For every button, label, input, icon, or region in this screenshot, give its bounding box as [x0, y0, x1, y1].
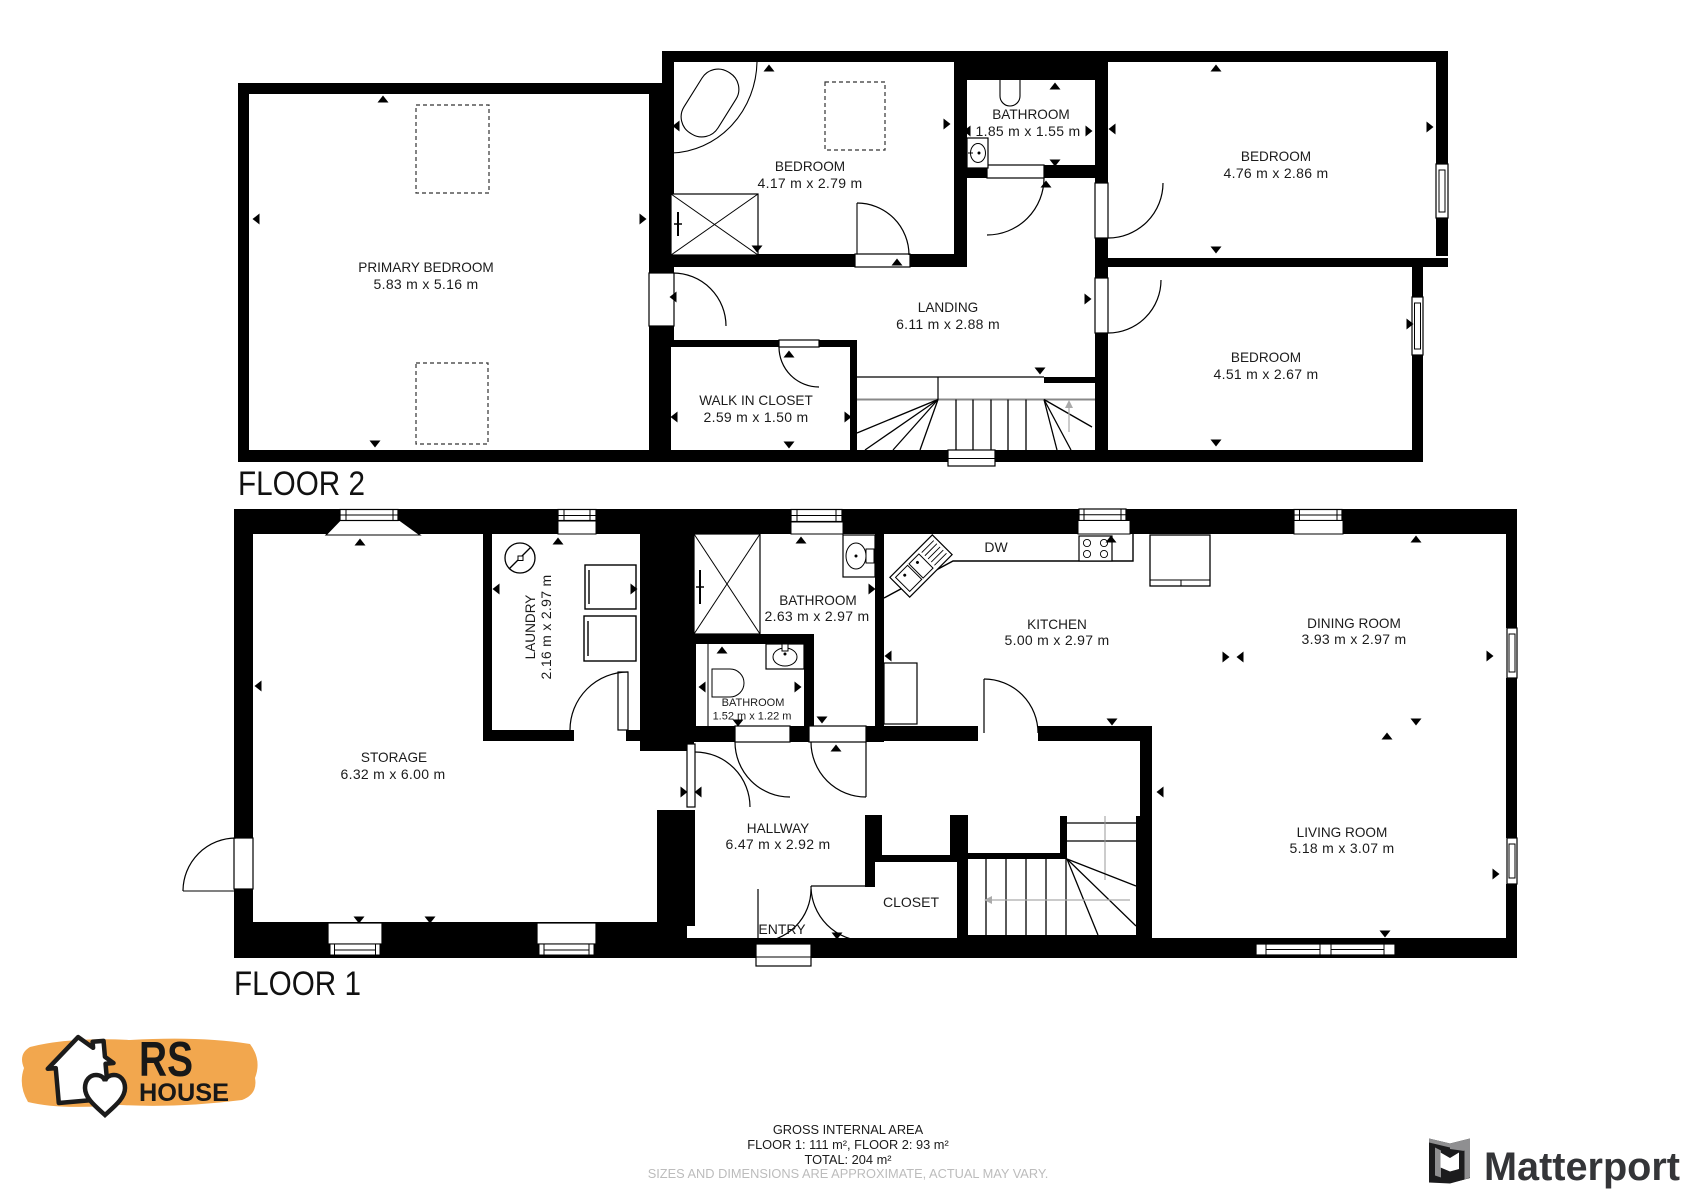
svg-text:LIVING ROOM: LIVING ROOM: [1297, 825, 1388, 840]
svg-text:4.17 m x 2.79 m: 4.17 m x 2.79 m: [758, 175, 863, 191]
svg-text:GROSS INTERNAL AREA: GROSS INTERNAL AREA: [773, 1122, 924, 1137]
svg-text:6.32 m x 6.00 m: 6.32 m x 6.00 m: [341, 766, 446, 782]
svg-text:FLOOR 2: FLOOR 2: [238, 465, 365, 503]
svg-text:5.18 m x 3.07 m: 5.18 m x 3.07 m: [1290, 840, 1395, 856]
svg-text:3.93 m x 2.97 m: 3.93 m x 2.97 m: [1302, 631, 1407, 647]
svg-text:PRIMARY BEDROOM: PRIMARY BEDROOM: [358, 260, 493, 275]
svg-text:BEDROOM: BEDROOM: [1231, 350, 1301, 365]
svg-text:FLOOR 1: 111 m², FLOOR 2: 93 m: FLOOR 1: 111 m², FLOOR 2: 93 m²: [747, 1137, 949, 1152]
svg-text:4.51 m x 2.67 m: 4.51 m x 2.67 m: [1214, 366, 1319, 382]
svg-text:DW: DW: [984, 539, 1008, 555]
svg-text:BEDROOM: BEDROOM: [775, 159, 845, 174]
svg-text:DINING ROOM: DINING ROOM: [1307, 616, 1401, 631]
svg-text:TOTAL: 204 m²: TOTAL: 204 m²: [805, 1152, 893, 1167]
svg-text:2.63 m x 2.97 m: 2.63 m x 2.97 m: [765, 608, 870, 624]
svg-text:BATHROOM: BATHROOM: [992, 107, 1070, 122]
svg-text:1.52 m x 1.22 m: 1.52 m x 1.22 m: [713, 711, 792, 723]
svg-text:STORAGE: STORAGE: [361, 750, 427, 765]
svg-text:4.76 m x 2.86 m: 4.76 m x 2.86 m: [1224, 165, 1329, 181]
svg-text:5.83 m x 5.16 m: 5.83 m x 5.16 m: [374, 276, 479, 292]
svg-text:SIZES AND DIMENSIONS ARE APPRO: SIZES AND DIMENSIONS ARE APPROXIMATE, AC…: [648, 1166, 1049, 1181]
svg-text:KITCHEN: KITCHEN: [1027, 617, 1087, 632]
svg-text:6.47 m x 2.92 m: 6.47 m x 2.92 m: [726, 836, 831, 852]
svg-text:5.00 m x 2.97 m: 5.00 m x 2.97 m: [1005, 632, 1110, 648]
svg-text:BATHROOM: BATHROOM: [722, 697, 785, 709]
svg-text:LANDING: LANDING: [918, 300, 978, 315]
svg-text:LAUNDRY: LAUNDRY: [523, 595, 538, 660]
svg-text:WALK IN CLOSET: WALK IN CLOSET: [699, 393, 813, 408]
svg-text:1.85 m x 1.55 m: 1.85 m x 1.55 m: [976, 123, 1081, 139]
svg-text:HALLWAY: HALLWAY: [747, 821, 809, 836]
svg-text:FLOOR 1: FLOOR 1: [234, 965, 361, 1003]
svg-text:HOUSE: HOUSE: [139, 1079, 229, 1107]
svg-text:Matterport: Matterport: [1484, 1145, 1680, 1189]
svg-text:6.11 m x 2.88 m: 6.11 m x 2.88 m: [896, 316, 1000, 332]
svg-text:BATHROOM: BATHROOM: [779, 593, 857, 608]
svg-text:2.59 m x 1.50 m: 2.59 m x 1.50 m: [704, 409, 809, 425]
svg-text:ENTRY: ENTRY: [758, 921, 806, 937]
svg-text:CLOSET: CLOSET: [883, 894, 939, 910]
svg-text:BEDROOM: BEDROOM: [1241, 149, 1311, 164]
svg-text:2.16 m x 2.97 m: 2.16 m x 2.97 m: [538, 575, 554, 680]
